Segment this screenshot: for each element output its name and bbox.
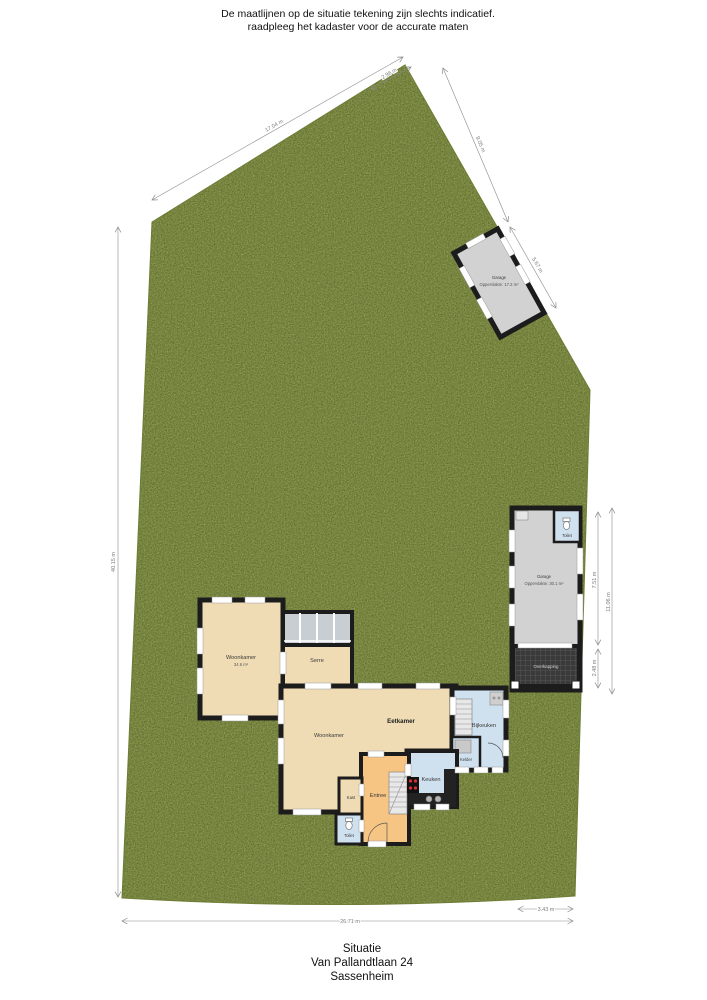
door-opening [359,820,364,832]
window [278,700,284,724]
label-woonkamer-wing: Woonkamer [226,655,256,661]
sink-icon [426,796,432,802]
stairs-entree [389,772,407,814]
header-note-line1: De maatlijnen op de situatie tekening zi… [221,8,495,20]
garage-inner-door [518,643,572,648]
window [492,767,503,773]
sink-icon [435,796,441,802]
garage-right-label: Garage [537,574,552,579]
window [414,804,430,810]
footer-address: Van Pallandtlaan 24 [311,957,414,969]
room-serre [283,645,352,688]
dimension-label-left: 40.15 m [111,552,117,572]
label-serre: Serre [310,658,324,664]
door-opening [359,784,364,796]
door-opening [450,697,456,715]
label-woonkamer-wing-sub: 34.6 m² [234,662,249,667]
meter-box [516,511,528,520]
toilet-icon [563,518,570,530]
dimension-label-bottom: 26.71 m [340,919,360,925]
window [436,804,449,810]
garage-right: Toilet Garage Oppervlakte: 30.1 m² Overk… [509,508,583,690]
garage-right-sublabel: Oppervlakte: 30.1 m² [524,581,564,586]
window [474,767,488,773]
label-eetkamer: Eetkamer [387,718,415,725]
window [509,566,515,588]
window [293,809,321,815]
front-door [368,841,386,847]
window [222,715,248,721]
window [358,683,382,689]
door-opening [503,740,509,756]
garage-top-sublabel: Oppervlakte: 17.2 m² [479,282,519,287]
footer-title: Situatie [343,943,381,955]
window [212,597,232,603]
window [305,683,331,689]
bijkeuken-counter [490,692,503,705]
label-toilet: Toilet [344,833,355,838]
door-opening [368,751,384,757]
dimension-label-right-outer: 11.06 m [606,592,612,612]
window [197,668,203,694]
label-entree: Entree [370,793,386,799]
label-bijkeuken: Bijkeuken [472,723,496,729]
dimension-label-garage-length: 7.51 m [592,571,598,588]
door-opening [280,652,286,674]
dimension-label-overkapping: 2.48 m [592,659,598,676]
window [509,604,515,626]
label-keuken: Keuken [422,777,441,783]
window [416,683,440,689]
footer-city: Sassenheim [330,971,393,983]
label-kelder: Kelder [460,757,473,762]
overkapping-label: Overkapping [534,664,559,669]
serre-glass [283,612,352,646]
window [577,548,583,574]
label-kast: Kast [347,795,356,800]
label-woonkamer: Woonkamer [314,733,344,739]
dimension-label-bottom-right: 3.43 m [538,907,555,913]
stove-icon [407,777,419,793]
toilet-icon [346,818,353,830]
plan-canvas: De maatlijnen op de situatie tekening zi… [0,0,707,1000]
situatie-plan-page: De maatlijnen op de situatie tekening zi… [0,0,707,1000]
garage-top-label: Garage [492,275,507,280]
window [503,700,509,718]
header-note-line2: raadpleeg het kadaster voor de accurate … [248,21,469,33]
window [509,530,515,552]
door-opening [405,764,411,776]
window [455,767,469,773]
stairs-bijkeuken [455,699,472,735]
overkapping-post [511,681,519,689]
window [197,628,203,654]
window [278,738,284,764]
window [245,597,265,603]
window [577,594,583,620]
overkapping-post [572,681,580,689]
garage-toilet-label: Toilet [562,533,573,538]
